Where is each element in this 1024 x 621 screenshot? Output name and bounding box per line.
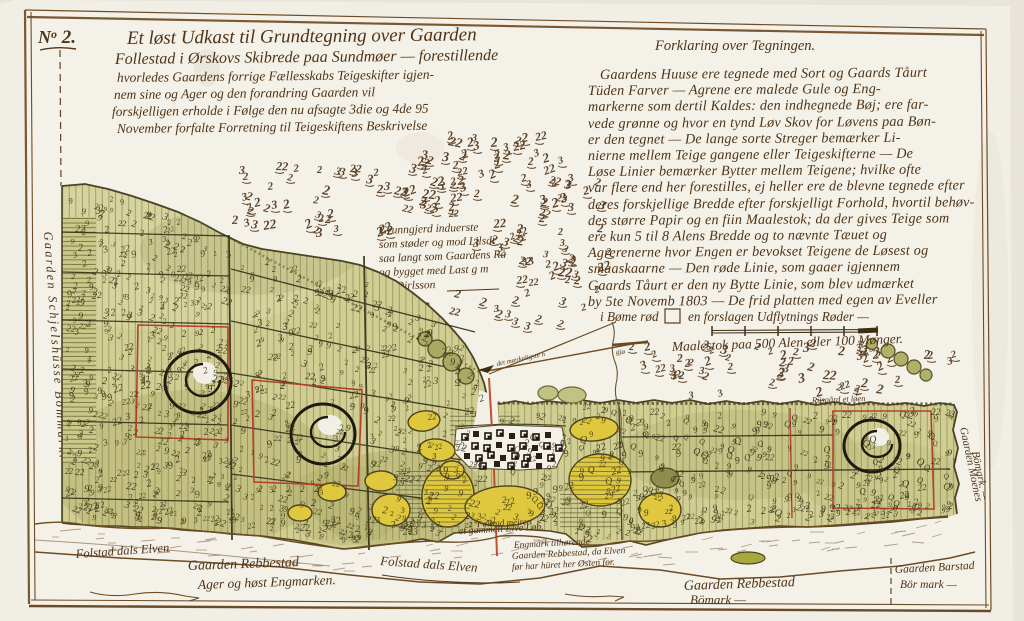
svg-text:2: 2 — [187, 238, 192, 249]
svg-text:2: 2 — [451, 160, 459, 172]
svg-text:22: 22 — [650, 408, 660, 418]
svg-text:9: 9 — [763, 450, 767, 459]
svg-text:2: 2 — [760, 506, 766, 517]
svg-text:2: 2 — [860, 375, 869, 390]
svg-text:22: 22 — [349, 163, 362, 175]
svg-text:22: 22 — [274, 434, 282, 443]
svg-text:22: 22 — [372, 299, 383, 311]
svg-text:3: 3 — [559, 238, 566, 249]
svg-text:2: 2 — [391, 400, 396, 409]
svg-text:gjø: gjø — [616, 348, 625, 356]
svg-text:2: 2 — [80, 365, 85, 375]
svg-text:2: 2 — [407, 393, 412, 403]
svg-text:2: 2 — [170, 321, 174, 330]
svg-text:9: 9 — [473, 383, 477, 392]
svg-text:22: 22 — [448, 189, 463, 205]
svg-text:2: 2 — [447, 504, 452, 513]
svg-text:9: 9 — [217, 480, 221, 489]
svg-text:22: 22 — [842, 410, 852, 421]
svg-text:2: 2 — [185, 446, 191, 456]
svg-text:Q: Q — [587, 464, 595, 476]
svg-text:Et løst Udkast til Grundtegnin: Et løst Udkast til Grundtegning over Gaa… — [126, 24, 477, 49]
svg-text:9: 9 — [122, 292, 126, 301]
svg-text:22: 22 — [142, 402, 152, 413]
svg-text:2: 2 — [633, 488, 638, 498]
svg-text:22: 22 — [75, 224, 86, 235]
svg-text:9: 9 — [181, 516, 187, 527]
svg-text:3: 3 — [223, 436, 229, 445]
svg-text:3: 3 — [240, 515, 245, 524]
svg-text:22: 22 — [492, 216, 508, 231]
svg-text:9: 9 — [307, 347, 313, 358]
svg-text:3: 3 — [432, 376, 439, 387]
svg-text:22: 22 — [126, 481, 137, 493]
svg-text:9: 9 — [126, 312, 131, 323]
svg-text:Q: Q — [699, 437, 705, 446]
svg-text:2: 2 — [71, 272, 75, 281]
svg-text:markerne som dertil Kaldes: de: markerne som dertil Kaldes: den indhegne… — [588, 97, 929, 115]
svg-text:2: 2 — [265, 258, 270, 268]
svg-text:22: 22 — [830, 502, 842, 515]
svg-text:22: 22 — [65, 466, 74, 476]
svg-text:9: 9 — [241, 426, 247, 437]
svg-text:2: 2 — [89, 425, 94, 436]
svg-text:22: 22 — [336, 284, 348, 297]
svg-text:var flere end her forestilles,: var flere end her forestilles, ej heller… — [588, 177, 965, 196]
svg-text:2: 2 — [175, 373, 179, 382]
svg-text:2: 2 — [365, 281, 369, 289]
svg-text:9: 9 — [213, 368, 218, 377]
svg-text:3: 3 — [492, 304, 499, 315]
svg-text:2: 2 — [356, 344, 360, 353]
svg-text:22: 22 — [528, 454, 537, 464]
svg-text:2: 2 — [233, 416, 238, 426]
svg-text:2: 2 — [524, 438, 530, 449]
svg-text:3: 3 — [332, 224, 339, 235]
svg-text:22: 22 — [898, 428, 907, 438]
svg-text:2: 2 — [152, 504, 157, 514]
svg-text:2: 2 — [266, 319, 270, 328]
svg-text:2: 2 — [436, 463, 441, 473]
svg-text:Q: Q — [948, 411, 954, 420]
svg-text:22: 22 — [917, 482, 928, 493]
svg-text:9: 9 — [444, 484, 449, 493]
svg-text:2: 2 — [864, 512, 869, 521]
svg-text:3: 3 — [422, 488, 428, 498]
svg-text:22: 22 — [268, 352, 279, 364]
svg-text:3: 3 — [669, 367, 678, 382]
svg-text:2: 2 — [364, 290, 368, 299]
svg-text:22: 22 — [931, 457, 941, 467]
svg-text:2: 2 — [355, 365, 359, 374]
svg-text:22: 22 — [275, 159, 289, 173]
svg-text:9: 9 — [536, 411, 540, 420]
svg-text:22: 22 — [515, 274, 529, 287]
svg-text:22: 22 — [309, 320, 318, 330]
svg-text:2: 2 — [366, 344, 370, 353]
svg-text:22: 22 — [230, 512, 240, 523]
svg-text:3: 3 — [314, 225, 323, 240]
svg-text:2: 2 — [336, 321, 340, 330]
svg-text:3: 3 — [441, 149, 450, 164]
svg-text:Q: Q — [616, 506, 624, 516]
svg-text:2: 2 — [199, 328, 203, 337]
svg-text:22: 22 — [870, 499, 881, 511]
svg-text:3: 3 — [791, 505, 796, 514]
svg-text:22: 22 — [285, 399, 297, 412]
svg-text:2: 2 — [156, 444, 161, 453]
svg-text:2: 2 — [134, 390, 139, 399]
svg-text:2: 2 — [211, 326, 215, 335]
svg-text:No 2.: No 2. — [37, 27, 76, 48]
svg-text:2: 2 — [424, 340, 428, 348]
svg-text:2: 2 — [909, 504, 914, 513]
svg-text:9: 9 — [793, 478, 798, 487]
svg-text:2: 2 — [93, 409, 98, 419]
svg-text:2: 2 — [726, 362, 733, 373]
svg-text:Q: Q — [514, 444, 521, 454]
svg-text:Bör mark —: Bör mark — — [900, 579, 958, 591]
svg-text:2: 2 — [231, 213, 239, 227]
svg-text:2: 2 — [70, 394, 76, 405]
svg-text:22: 22 — [468, 498, 480, 511]
svg-text:3: 3 — [672, 520, 678, 530]
svg-text:des større Papir og en fiin Ma: des større Papir og en fiin Maalestok; d… — [588, 210, 950, 229]
svg-text:3: 3 — [402, 366, 408, 375]
svg-text:9: 9 — [164, 446, 169, 457]
svg-text:22: 22 — [931, 408, 941, 418]
svg-text:2: 2 — [214, 519, 218, 528]
svg-text:2: 2 — [93, 287, 98, 298]
svg-text:22: 22 — [176, 263, 186, 274]
svg-text:Q: Q — [784, 419, 791, 430]
svg-text:2: 2 — [473, 188, 480, 200]
svg-text:2: 2 — [778, 355, 787, 370]
svg-text:22: 22 — [75, 468, 85, 478]
svg-text:smaaskaarne — Den røde Linie: smaaskaarne — Den røde Linie, som gaaer … — [588, 259, 900, 277]
svg-text:9: 9 — [233, 399, 239, 410]
svg-text:Bömark —: Bömark — — [690, 592, 746, 607]
svg-text:3: 3 — [194, 298, 199, 307]
svg-text:2: 2 — [102, 376, 107, 387]
svg-text:3: 3 — [471, 410, 477, 420]
svg-text:9: 9 — [324, 471, 329, 481]
svg-text:en forslagen Udflytnings Røder: en forslagen Udflytnings Røder — — [688, 309, 869, 324]
svg-text:22: 22 — [870, 411, 878, 420]
svg-text:i Bøme rød: i Bøme rød — [600, 309, 659, 324]
svg-text:22: 22 — [671, 441, 681, 452]
svg-text:3: 3 — [163, 409, 170, 420]
svg-text:9: 9 — [84, 484, 89, 495]
svg-text:2: 2 — [812, 411, 818, 422]
svg-text:9: 9 — [423, 456, 428, 467]
svg-text:3: 3 — [818, 509, 824, 520]
svg-text:22: 22 — [503, 502, 513, 512]
svg-text:22: 22 — [388, 414, 396, 423]
svg-text:22: 22 — [305, 371, 316, 383]
svg-text:2: 2 — [316, 165, 322, 176]
svg-text:2: 2 — [425, 329, 431, 340]
svg-text:Forklaring over Tegningen.: Forklaring over Tegningen. — [654, 38, 815, 54]
svg-text:22: 22 — [177, 401, 186, 411]
svg-text:3: 3 — [134, 514, 140, 523]
svg-text:2: 2 — [390, 510, 394, 518]
svg-text:9: 9 — [655, 454, 659, 462]
svg-text:22: 22 — [118, 219, 126, 228]
svg-text:2: 2 — [82, 288, 86, 297]
svg-text:2: 2 — [573, 273, 581, 287]
svg-text:2: 2 — [596, 221, 604, 235]
svg-text:Q: Q — [693, 446, 701, 458]
svg-text:9: 9 — [157, 467, 161, 476]
svg-text:2: 2 — [876, 471, 881, 482]
svg-text:2: 2 — [460, 422, 465, 431]
svg-text:by 5te Novemb 1803 — De frid: by 5te Novemb 1803 — De frid platten med… — [588, 292, 938, 310]
svg-text:22: 22 — [203, 514, 211, 523]
svg-text:2: 2 — [541, 473, 546, 483]
svg-text:9: 9 — [225, 483, 229, 492]
svg-text:2: 2 — [466, 428, 471, 438]
svg-text:22: 22 — [582, 402, 591, 412]
svg-text:Q: Q — [611, 408, 617, 417]
svg-text:22: 22 — [266, 516, 276, 527]
svg-text:9: 9 — [296, 455, 301, 466]
svg-text:2: 2 — [300, 484, 305, 494]
svg-text:nem sine og Ager og den forand: nem sine og Ager og den forandring Gaard… — [114, 84, 376, 102]
svg-text:3: 3 — [383, 179, 390, 193]
svg-text:9: 9 — [897, 448, 901, 457]
svg-text:22: 22 — [241, 284, 252, 295]
svg-text:9: 9 — [92, 513, 97, 522]
svg-text:2: 2 — [342, 461, 346, 470]
svg-text:2: 2 — [242, 171, 250, 183]
svg-text:2: 2 — [376, 182, 383, 196]
svg-text:2: 2 — [734, 508, 739, 517]
svg-text:2: 2 — [557, 227, 564, 238]
svg-text:2: 2 — [270, 285, 274, 294]
svg-text:3: 3 — [471, 133, 478, 144]
svg-text:2: 2 — [311, 498, 316, 509]
svg-text:3: 3 — [219, 375, 225, 384]
svg-text:2: 2 — [324, 460, 328, 469]
svg-text:2: 2 — [121, 258, 126, 268]
svg-text:22: 22 — [332, 479, 341, 489]
svg-text:3: 3 — [472, 236, 479, 250]
svg-text:2: 2 — [527, 156, 534, 168]
svg-text:22: 22 — [527, 277, 539, 289]
svg-text:9: 9 — [761, 407, 767, 418]
svg-text:2: 2 — [605, 247, 611, 258]
svg-text:2: 2 — [296, 274, 302, 285]
svg-text:Q: Q — [530, 433, 537, 442]
svg-text:9: 9 — [280, 518, 286, 529]
svg-text:3: 3 — [64, 434, 70, 443]
svg-text:3: 3 — [421, 520, 427, 530]
svg-text:9: 9 — [78, 311, 83, 322]
svg-text:3: 3 — [93, 392, 98, 401]
svg-text:22: 22 — [598, 459, 607, 469]
svg-text:22: 22 — [140, 380, 152, 392]
svg-text:Rüsgård et løen: Rüsgård et løen — [811, 393, 866, 405]
svg-text:22: 22 — [725, 506, 733, 515]
svg-text:22: 22 — [447, 208, 459, 220]
svg-text:2: 2 — [561, 433, 567, 444]
svg-text:Q: Q — [904, 410, 910, 419]
svg-text:2: 2 — [538, 211, 545, 225]
svg-text:3: 3 — [698, 365, 705, 377]
svg-text:9: 9 — [139, 370, 143, 379]
svg-text:9: 9 — [443, 466, 448, 477]
svg-text:Q: Q — [683, 416, 690, 425]
svg-text:22: 22 — [694, 516, 704, 526]
svg-text:9: 9 — [171, 270, 175, 279]
svg-text:2: 2 — [255, 409, 260, 420]
svg-text:22: 22 — [478, 475, 488, 485]
svg-text:9: 9 — [349, 402, 355, 413]
svg-text:9: 9 — [824, 461, 829, 472]
svg-text:9: 9 — [357, 533, 361, 542]
svg-text:2: 2 — [287, 435, 292, 445]
svg-text:2: 2 — [324, 212, 332, 226]
svg-text:22: 22 — [360, 355, 370, 365]
svg-text:22: 22 — [822, 367, 837, 383]
